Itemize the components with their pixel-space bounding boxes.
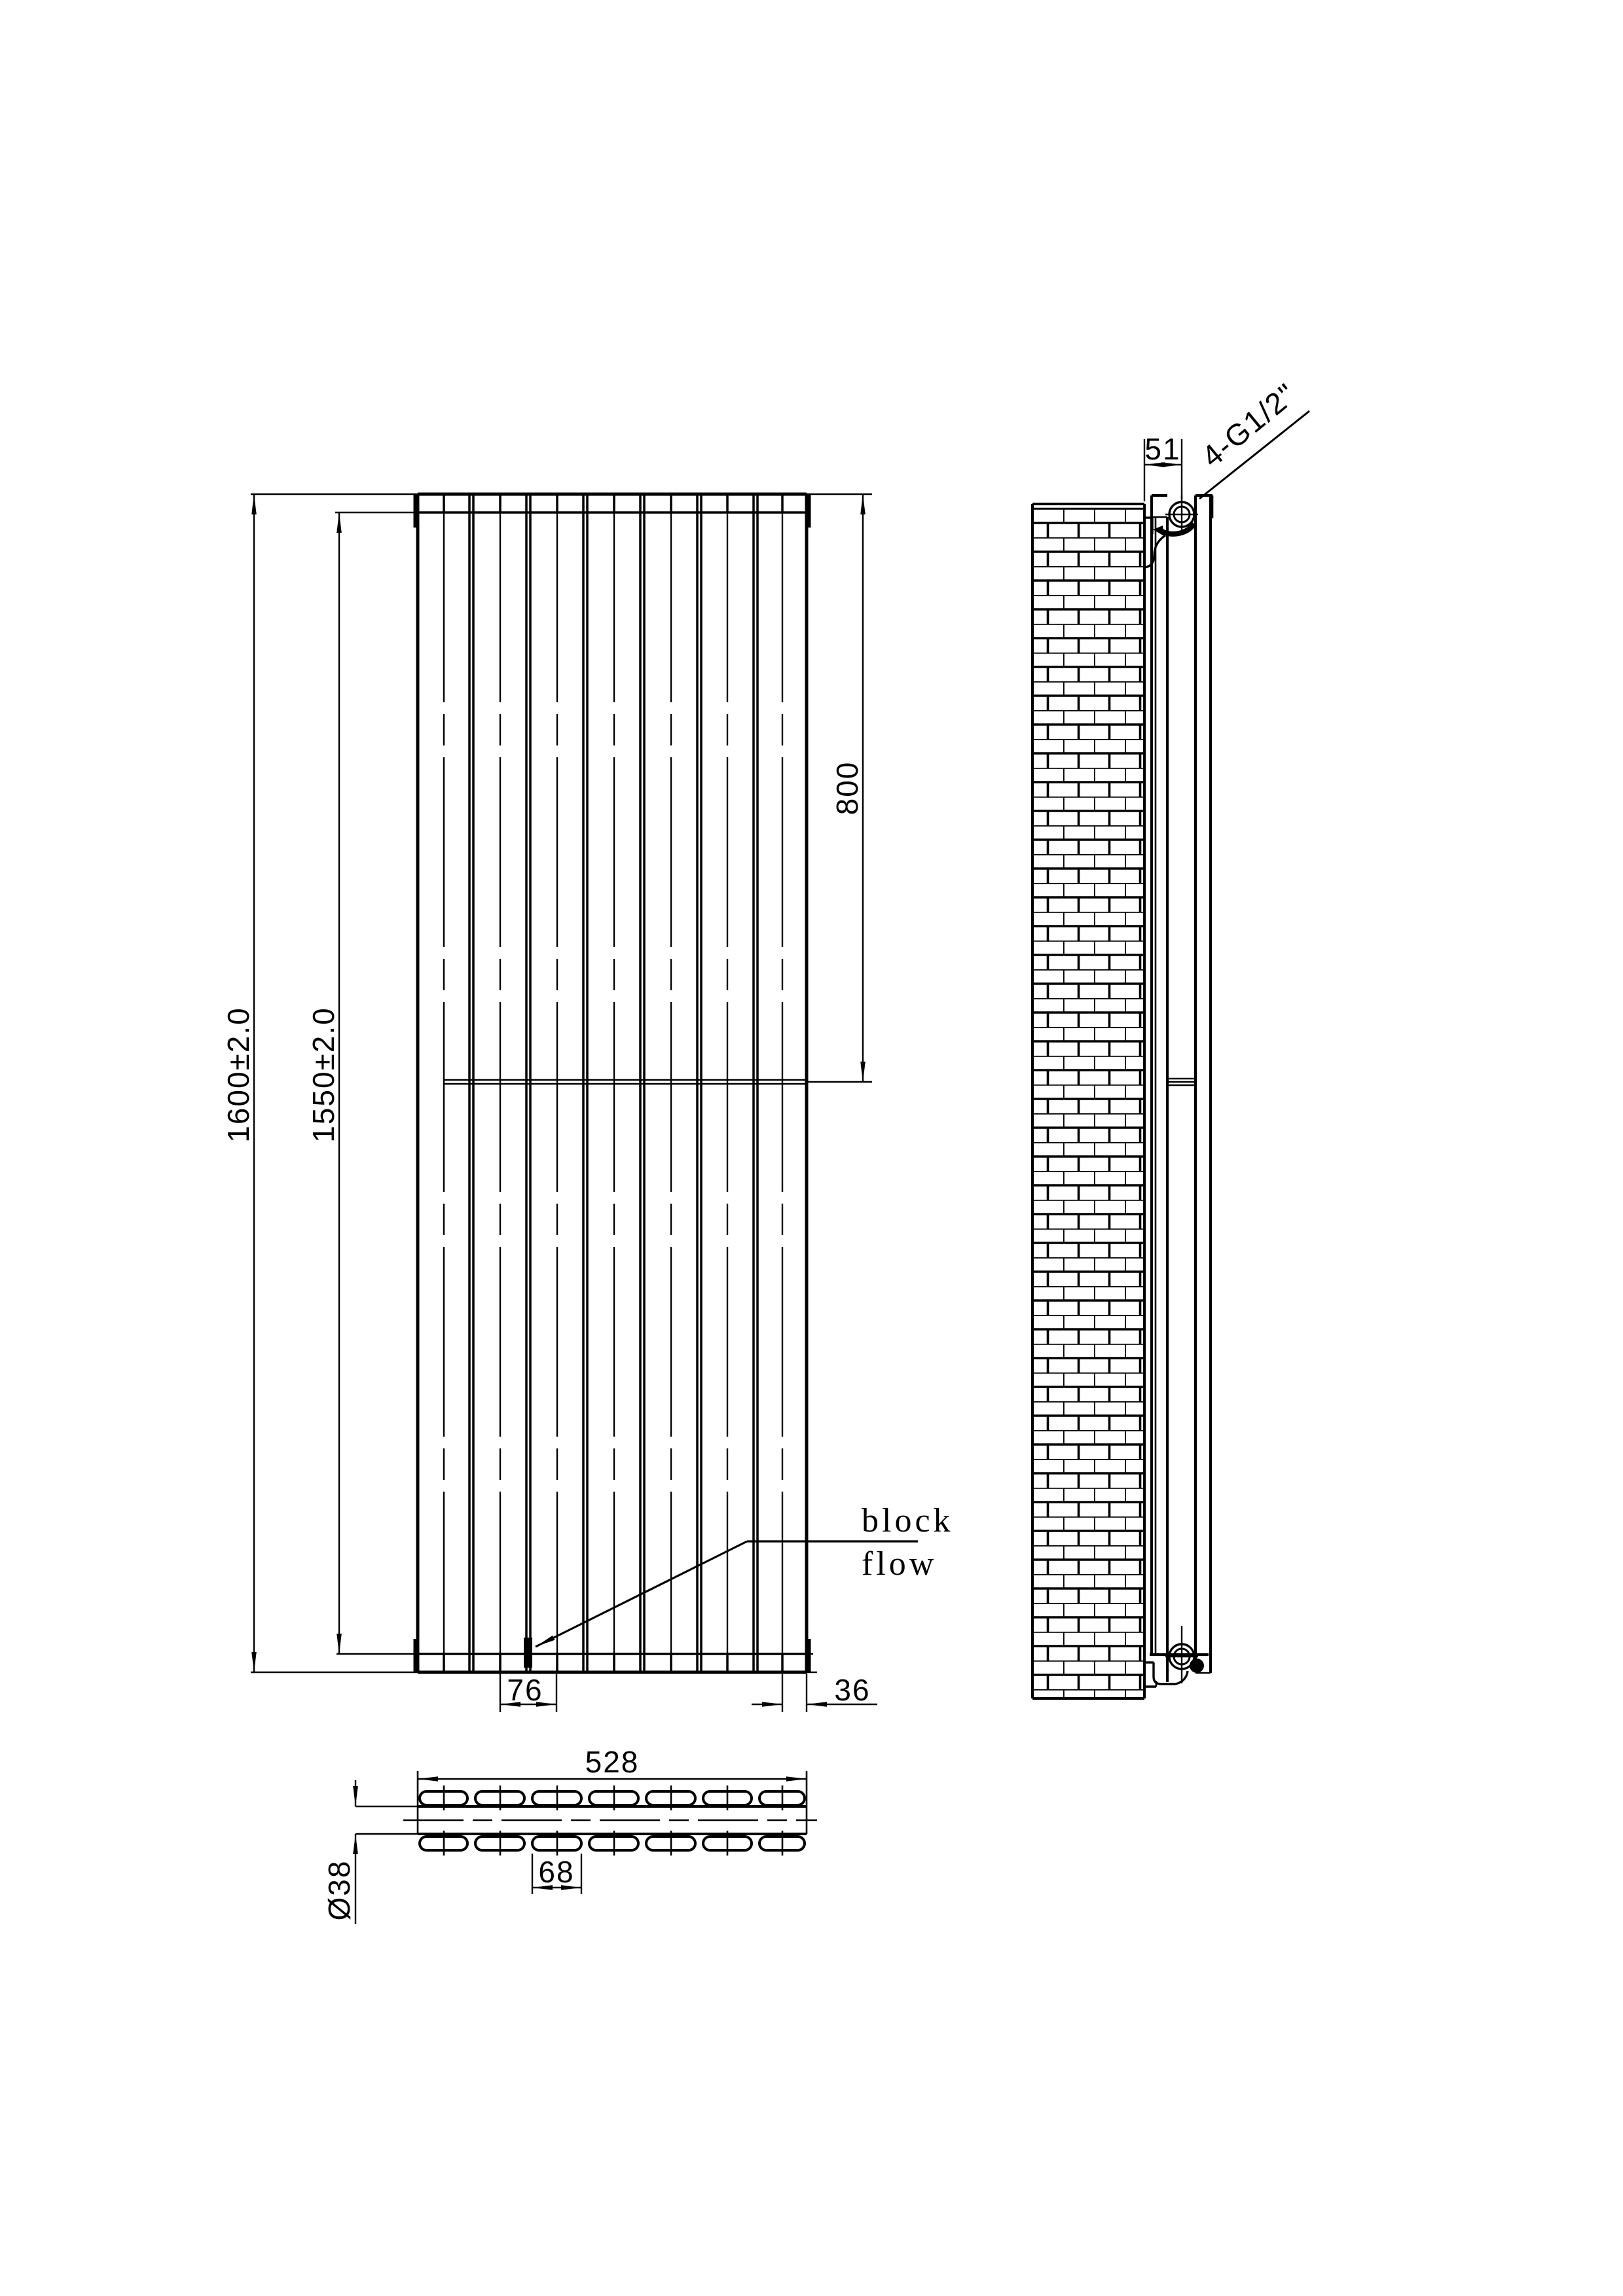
dim-tube-height: 1550±2.0 — [306, 512, 340, 1654]
radiator-technical-drawing: 1600±2.0 1550±2.0 800 76 36 — [0, 0, 1623, 2296]
drawing-page: 1600±2.0 1550±2.0 800 76 36 — [0, 0, 1623, 2296]
front-radiator-body — [416, 494, 808, 1672]
dim-overall-height: 1600±2.0 — [221, 494, 255, 1672]
side-joint-lines — [1167, 1079, 1195, 1085]
dim-upper-section: 800 — [830, 494, 864, 1082]
bottom-view: 528 68 Ø38 — [322, 1745, 817, 1924]
side-view: 51 4-G1/2" — [1032, 376, 1309, 1698]
dim-edge-offset-text: 36 — [834, 1673, 870, 1707]
flow-label: flow — [862, 1545, 937, 1583]
dim-panel-pitch-text: 76 — [507, 1673, 543, 1707]
block-label: block — [862, 1502, 954, 1539]
side-radiator-body — [1150, 495, 1213, 1682]
dim-wall-clearance-text: 51 — [1144, 432, 1180, 466]
dim-tube-height-text: 1550±2.0 — [306, 1007, 340, 1143]
bottom-bracket-blob — [1190, 1659, 1204, 1673]
tube-row-rear — [420, 1791, 805, 1805]
dim-tube-width-text: 68 — [538, 1855, 574, 1889]
tube-row-front — [420, 1837, 805, 1850]
dim-collector-diameter-text: Ø38 — [322, 1860, 356, 1921]
dim-panel-pitch: 76 — [500, 1673, 556, 1712]
brick-hatch — [1032, 509, 1144, 1698]
connection-thread-label: 4-G1/2" — [1195, 376, 1309, 499]
dim-overall-width: 528 — [418, 1745, 807, 1779]
dim-overall-height-text: 1600±2.0 — [221, 1007, 255, 1143]
blocked-tube-mark — [524, 1638, 532, 1668]
dim-tube-width: 68 — [532, 1854, 581, 1894]
front-view: 1600±2.0 1550±2.0 800 76 36 — [221, 494, 954, 1712]
top-bracket-tip — [1153, 526, 1164, 536]
dim-wall-clearance: 51 — [1144, 432, 1182, 501]
brick-wall — [1032, 504, 1144, 1698]
dim-upper-section-text: 800 — [830, 761, 864, 816]
dim-edge-offset: 36 — [752, 1673, 877, 1712]
dim-overall-width-text: 528 — [585, 1745, 640, 1779]
dim-collector-diameter: Ø38 — [322, 1780, 420, 1924]
